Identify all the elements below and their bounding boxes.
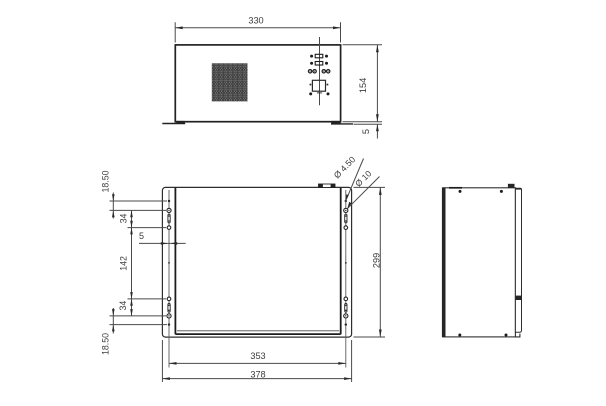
svg-text:142: 142 xyxy=(119,256,129,271)
svg-text:299: 299 xyxy=(372,253,382,268)
svg-text:5: 5 xyxy=(361,129,371,134)
svg-text:378: 378 xyxy=(250,369,265,379)
svg-text:34: 34 xyxy=(118,301,128,311)
svg-text:154: 154 xyxy=(358,78,368,93)
svg-text:18.50: 18.50 xyxy=(101,170,111,192)
svg-text:5: 5 xyxy=(139,231,144,241)
svg-text:18.50: 18.50 xyxy=(101,333,111,355)
svg-text:Ø 4.50: Ø 4.50 xyxy=(332,154,358,180)
svg-text:330: 330 xyxy=(248,15,263,25)
svg-text:34: 34 xyxy=(119,214,129,224)
svg-text:353: 353 xyxy=(250,351,265,361)
